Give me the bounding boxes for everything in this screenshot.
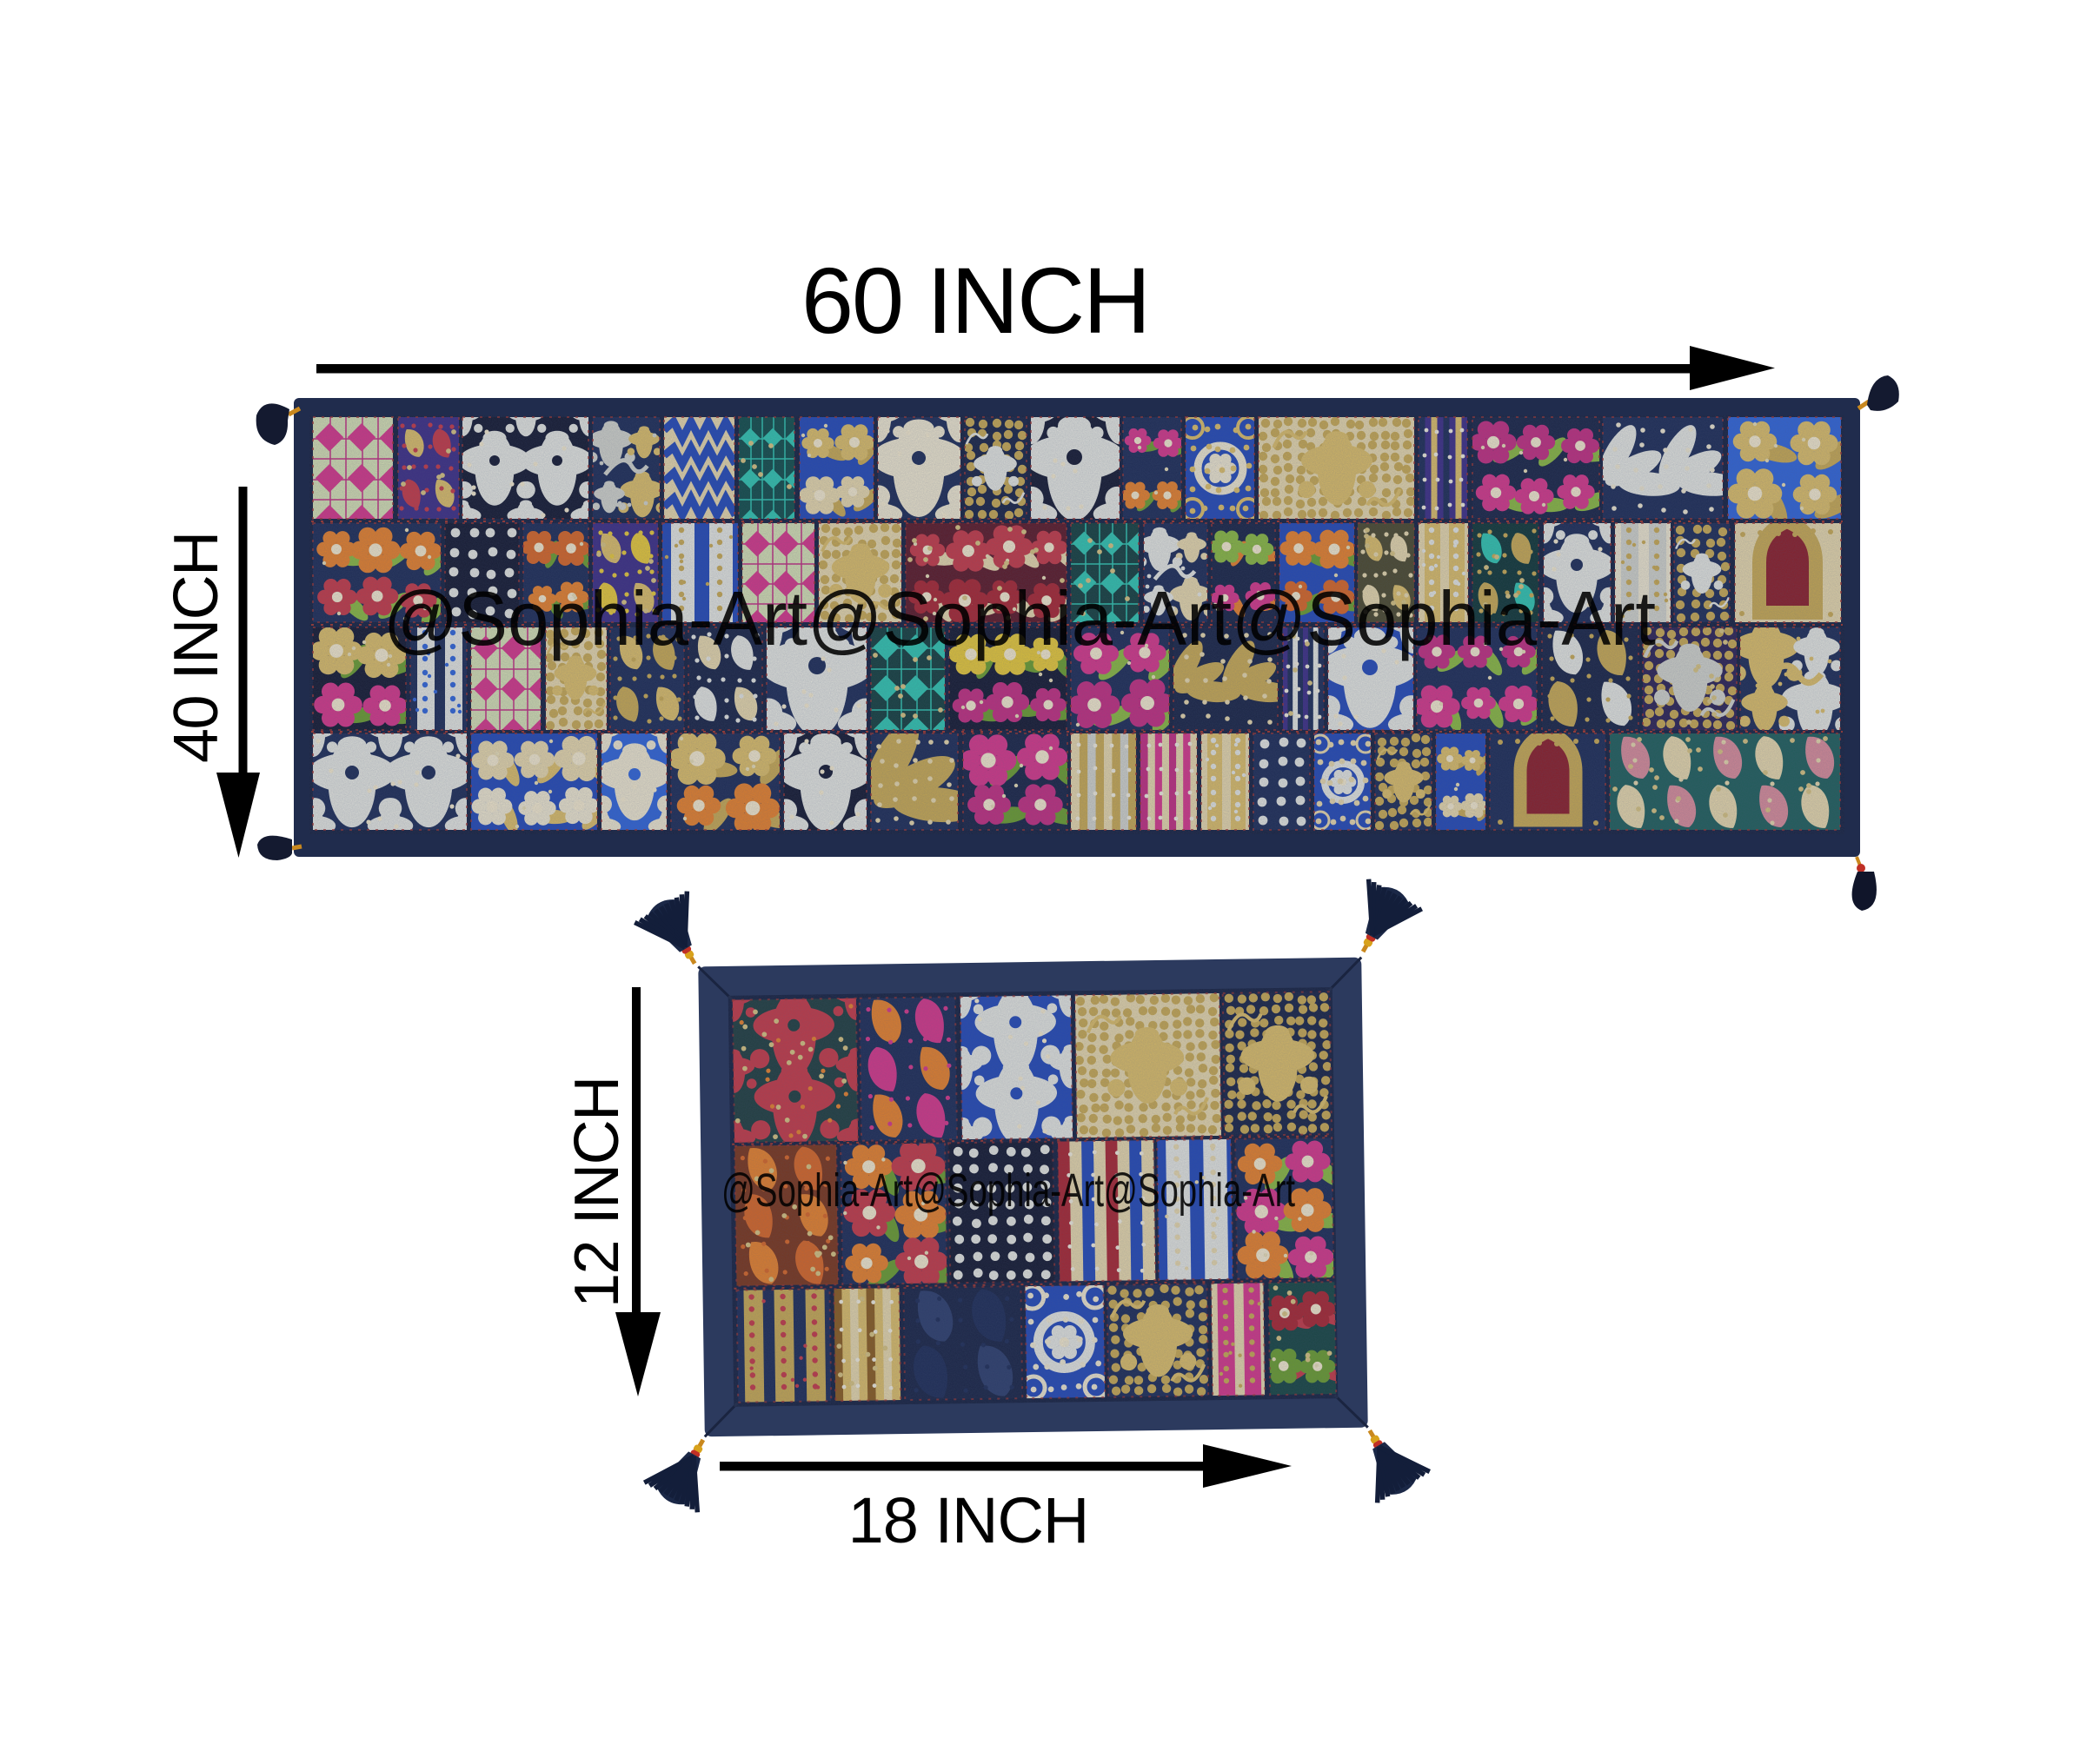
svg-text:@Sophia-Art@Sophia-Art@Sophia-: @Sophia-Art@Sophia-Art@Sophia-Art — [721, 1164, 1295, 1217]
svg-text:12 INCH: 12 INCH — [562, 1077, 632, 1308]
svg-text:@Sophia-Art@Sophia-Art@Sophia-: @Sophia-Art@Sophia-Art@Sophia-Art — [383, 575, 1656, 661]
svg-text:18 INCH: 18 INCH — [848, 1484, 1089, 1556]
svg-text:40 INCH: 40 INCH — [162, 532, 231, 763]
svg-text:60 INCH: 60 INCH — [801, 248, 1149, 353]
